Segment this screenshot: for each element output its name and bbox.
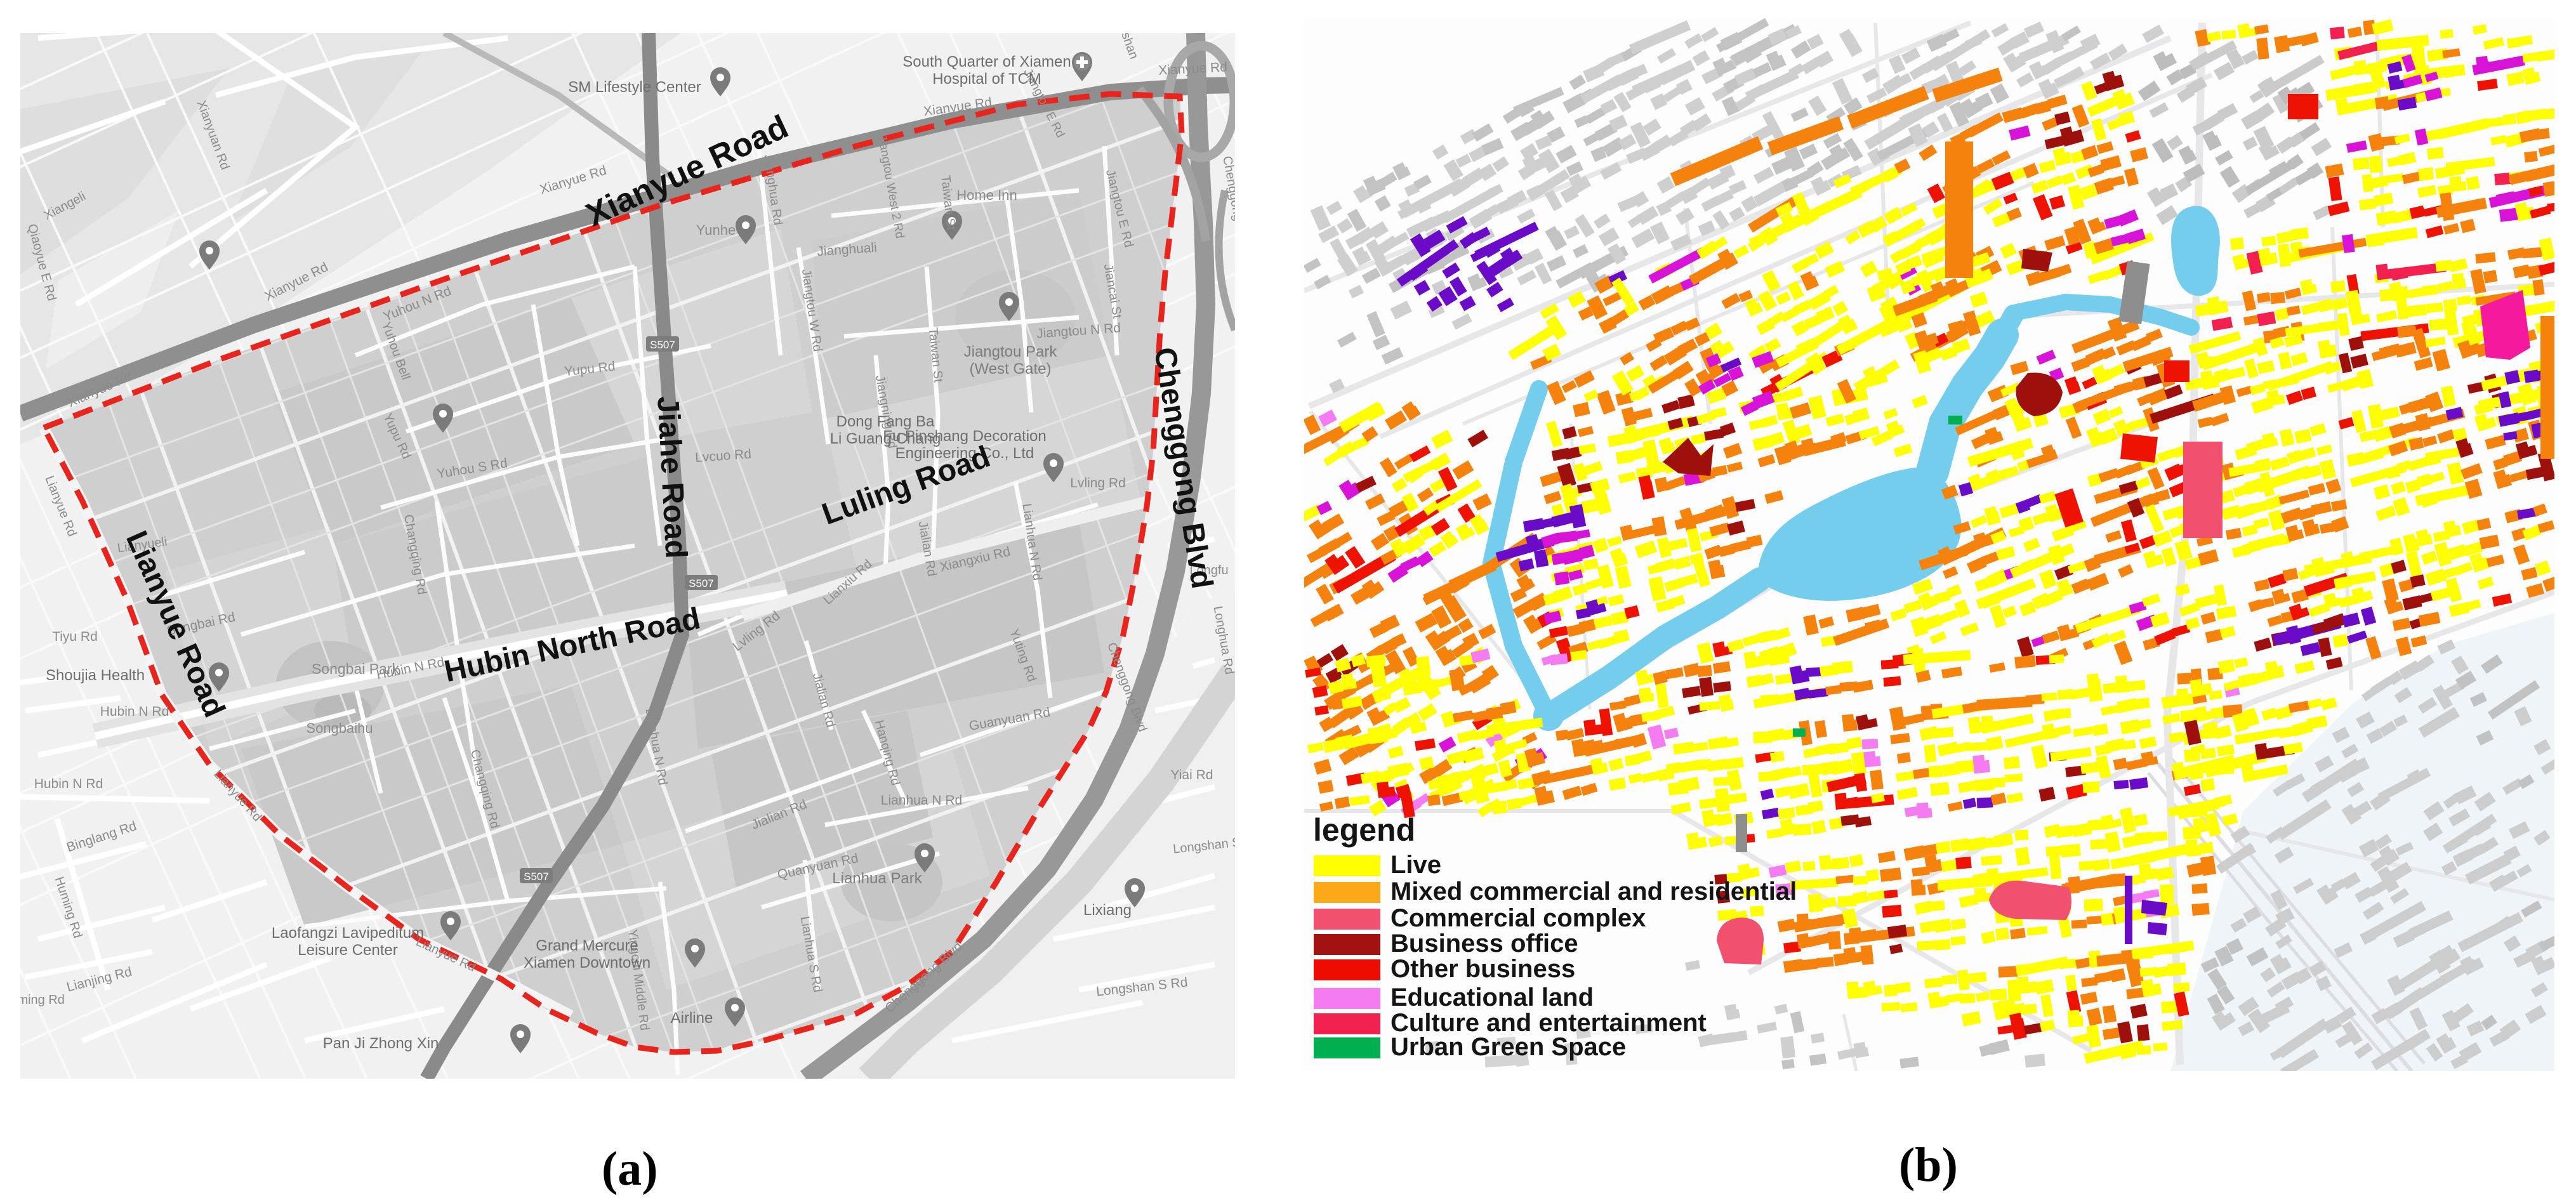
- svg-text:Shoujia Health: Shoujia Health: [46, 667, 145, 684]
- svg-text:Other business: Other business: [1390, 955, 1575, 983]
- svg-text:Yunhe: Yunhe: [696, 222, 736, 238]
- svg-text:ongming Rd: ongming Rd: [20, 993, 65, 1007]
- svg-text:Mixed commercial and residenti: Mixed commercial and residential: [1390, 878, 1797, 905]
- svg-text:Songbaihu: Songbaihu: [306, 720, 373, 736]
- svg-text:Fu Pinshang Decoration: Fu Pinshang Decoration: [883, 428, 1046, 445]
- svg-text:Grand Mercure: Grand Mercure: [536, 937, 638, 954]
- svg-text:Lvling Rd: Lvling Rd: [1070, 476, 1126, 490]
- svg-text:Hubin N Rd: Hubin N Rd: [100, 704, 169, 719]
- svg-text:Airline: Airline: [671, 1010, 713, 1027]
- svg-text:Laofangzi Lavipeditum: Laofangzi Lavipeditum: [272, 925, 424, 942]
- svg-text:(West Gate): (West Gate): [970, 360, 1052, 378]
- svg-text:Hospital of TCM: Hospital of TCM: [932, 70, 1041, 88]
- svg-text:Lixiang: Lixiang: [1083, 902, 1132, 919]
- svg-text:Home Inn: Home Inn: [956, 187, 1017, 203]
- svg-text:Educational land: Educational land: [1390, 984, 1594, 1011]
- svg-text:South Quarter of Xiamen: South Quarter of Xiamen: [902, 53, 1071, 70]
- svg-text:S507: S507: [524, 871, 549, 883]
- svg-text:Tiyu Rd: Tiyu Rd: [52, 629, 98, 644]
- svg-text:Pan Ji Zhong Xin: Pan Ji Zhong Xin: [323, 1035, 439, 1052]
- svg-text:Hubin N Rd: Hubin N Rd: [34, 777, 103, 791]
- svg-text:Business office: Business office: [1390, 930, 1578, 958]
- svg-text:SM Lifestyle Center: SM Lifestyle Center: [568, 79, 701, 96]
- svg-text:S507: S507: [689, 577, 714, 589]
- svg-text:S507: S507: [650, 339, 675, 351]
- svg-text:Leisure Center: Leisure Center: [298, 942, 397, 959]
- svg-text:Commercial complex: Commercial complex: [1390, 904, 1646, 932]
- svg-text:Lianhua N Rd: Lianhua N Rd: [881, 793, 962, 808]
- svg-text:Urban Green Space: Urban Green Space: [1390, 1033, 1626, 1061]
- svg-text:Lianhua Park: Lianhua Park: [832, 870, 922, 887]
- svg-text:Yiai Rd: Yiai Rd: [1171, 768, 1213, 782]
- svg-text:Xiamen Downtown: Xiamen Downtown: [524, 954, 651, 971]
- svg-text:legend: legend: [1313, 812, 1415, 848]
- svg-text:Live: Live: [1390, 851, 1441, 879]
- svg-text:Jiangtou Park: Jiangtou Park: [964, 343, 1058, 360]
